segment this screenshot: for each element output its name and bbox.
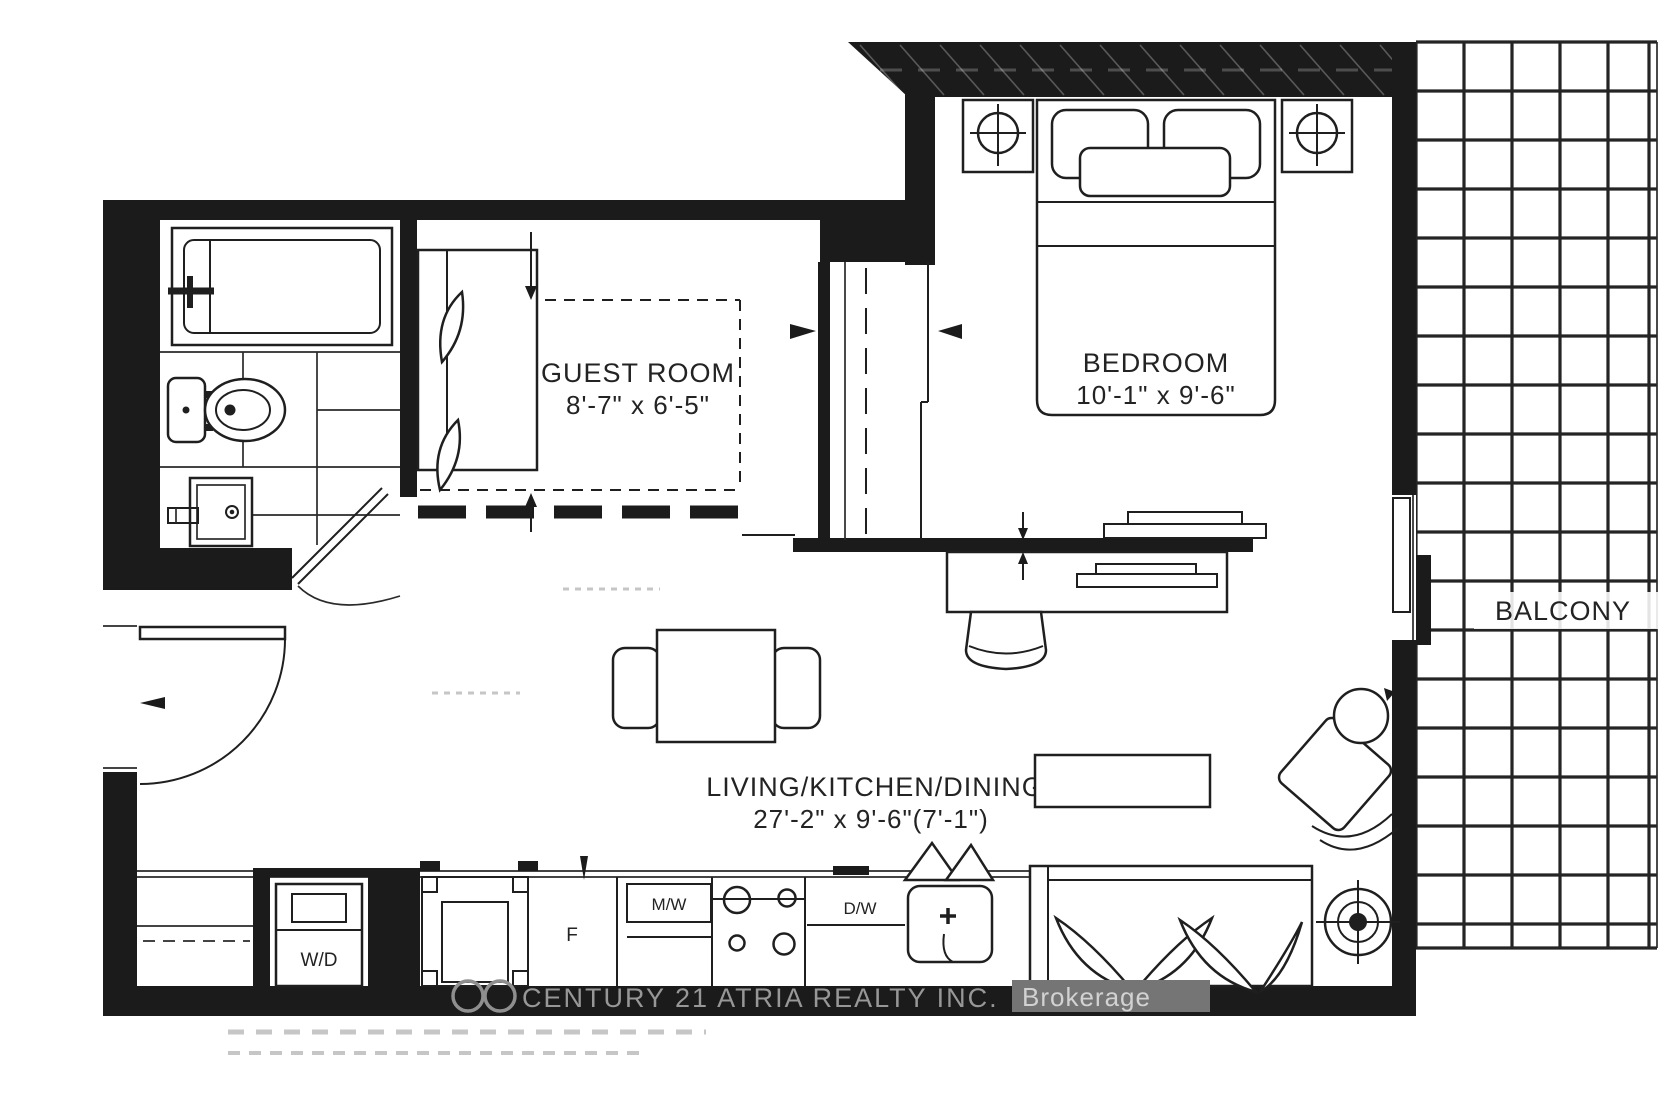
bathroom-door <box>292 488 400 605</box>
balcony-tile-grid <box>1416 42 1657 948</box>
bathtub <box>168 228 392 345</box>
nightstand-left <box>963 100 1033 172</box>
entry-door-leaf <box>140 627 285 639</box>
guest-bed <box>418 250 537 490</box>
entry-door-swing-arc <box>140 639 285 784</box>
counter-tick <box>518 861 538 871</box>
entry-arrow-icon <box>140 697 165 709</box>
nightstand-right <box>1282 100 1352 172</box>
balcony-label: BALCONY <box>1495 596 1631 626</box>
living-furniture <box>1030 688 1400 992</box>
sink-peak <box>946 845 993 880</box>
closet-header-wall <box>820 220 935 262</box>
washer-dryer: W/D <box>276 884 362 986</box>
counter-tick <box>833 866 869 875</box>
living-label: LIVING/KITCHEN/DINING <box>706 772 1044 802</box>
bedroom: BEDROOM 10'-1" x 9'-6" <box>963 100 1352 538</box>
desk-area <box>947 512 1227 669</box>
kitchen-sink <box>905 843 993 962</box>
balcony: BALCONY <box>1416 42 1666 948</box>
watermark-suffix: Brokerage <box>1022 982 1151 1012</box>
bedroom-south-wall <box>793 538 1253 552</box>
kitchen: W/D F M/W <box>137 843 1030 986</box>
west-wall-upper <box>103 200 160 590</box>
east-wall-upper <box>1392 42 1416 495</box>
east-wall-lower <box>1392 640 1416 986</box>
pantry-closet <box>422 877 528 986</box>
watermark: CENTURY 21 ATRIA REALTY INC. Brokerage <box>453 980 1210 1013</box>
coffee-table <box>1035 755 1210 807</box>
dining-table <box>657 630 775 742</box>
microwave-label: M/W <box>652 895 687 914</box>
bathroom-east-wall <box>400 200 417 497</box>
desk <box>947 552 1227 612</box>
guest-room-dims: 8'-7" x 6'-5" <box>566 390 710 420</box>
watermark-brand: CENTURY 21 ATRIA REALTY INC. <box>522 983 999 1013</box>
dresser <box>1104 524 1266 538</box>
bed-cushion <box>1080 148 1230 196</box>
living-dims: 27'-2" x 9'-6"(7'-1") <box>753 804 989 834</box>
bedroom-closet <box>742 262 962 540</box>
dining-chair <box>613 648 660 728</box>
entry-door <box>140 627 285 784</box>
toilet <box>168 378 285 442</box>
balcony-privacy-stub <box>1415 555 1431 645</box>
dining-chair <box>772 648 820 728</box>
washer-dryer-label: W/D <box>301 950 338 971</box>
bathroom-south-wall <box>103 548 292 590</box>
west-wall-lower <box>103 772 137 1016</box>
arrow-right-icon <box>790 324 816 339</box>
balcony-sliding-door <box>1392 495 1416 640</box>
bedroom-dims: 10'-1" x 9'-6" <box>1076 380 1235 410</box>
fridge-label: F <box>566 925 578 946</box>
north-wall <box>103 200 935 220</box>
arrow-left-icon <box>938 324 962 339</box>
floor-plan: BALCONY <box>0 0 1680 1098</box>
dishwasher-label: D/W <box>843 899 876 918</box>
side-table <box>1334 689 1388 743</box>
floor-lamp-icon <box>1316 880 1400 964</box>
guest-room-label: GUEST ROOM <box>541 358 735 388</box>
closet-left-wall <box>818 262 830 540</box>
bedroom-label: BEDROOM <box>1083 348 1230 378</box>
dresser-top <box>1128 512 1242 524</box>
stove-cooktop <box>712 877 805 986</box>
sofa <box>1030 866 1312 992</box>
floor-plan-page: BALCONY <box>0 0 1680 1098</box>
microwave: M/W <box>627 884 711 937</box>
desk-chair <box>966 612 1046 669</box>
guest-room: GUEST ROOM 8'-7" x 6'-5" <box>418 232 752 532</box>
burner-icon <box>730 936 745 951</box>
vanity-sink <box>168 478 252 546</box>
counter-tick <box>420 861 440 871</box>
dining-set <box>613 630 820 742</box>
burner-icon <box>774 934 795 955</box>
